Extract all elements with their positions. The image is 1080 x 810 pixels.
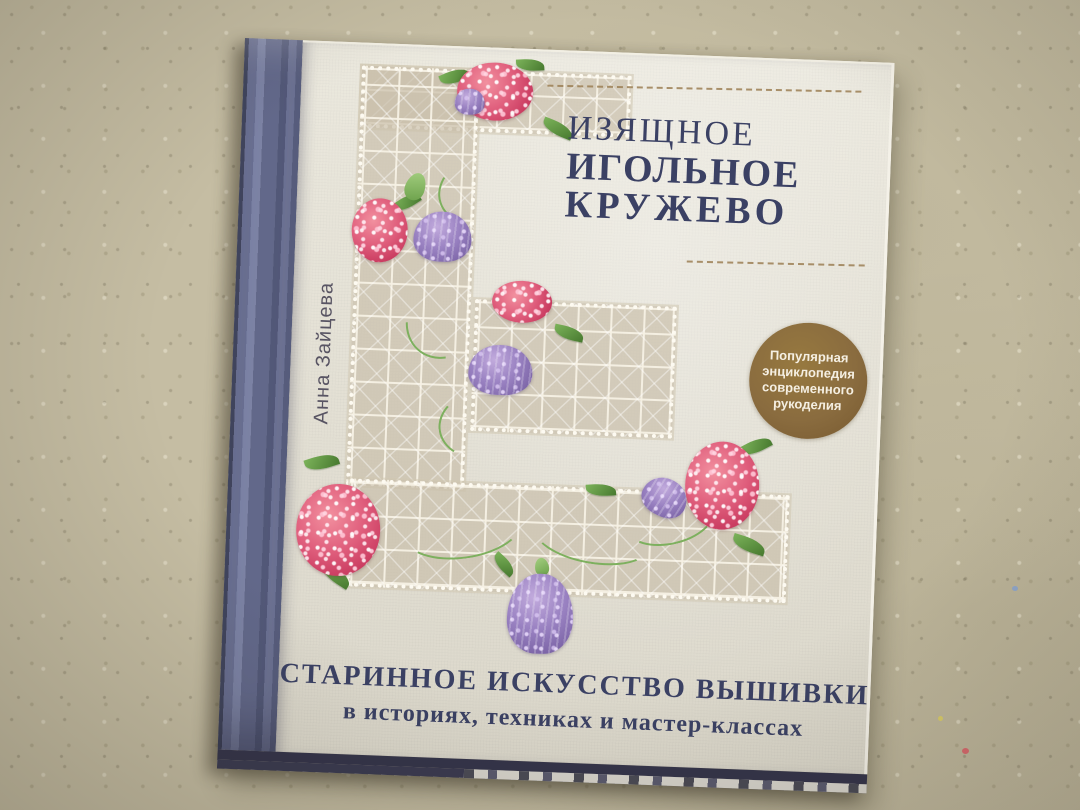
book-front-cover: Анна Зайцева ИЗЯЩНОЕ ИГОЛЬНОЕ КРУЖЕВО По… xyxy=(276,40,895,774)
photo-scene: Анна Зайцева ИЗЯЩНОЕ ИГОЛЬНОЕ КРУЖЕВО По… xyxy=(0,0,1080,810)
paint-speck xyxy=(938,716,943,721)
author-name: Анна Зайцева xyxy=(310,263,351,444)
gold-divider-middle xyxy=(687,261,865,267)
title-line-3: КРУЖЕВО xyxy=(564,185,800,232)
book: Анна Зайцева ИЗЯЩНОЕ ИГОЛЬНОЕ КРУЖЕВО По… xyxy=(217,38,895,793)
badge-line-4: рукоделия xyxy=(773,396,842,415)
subtitle: СТАРИННОЕ ИСКУССТВО ВЫШИВКИ в историях, … xyxy=(277,658,871,746)
purple-flower xyxy=(454,88,485,115)
publisher-badge: Популярная энциклопедия современного рук… xyxy=(747,321,869,441)
paint-speck xyxy=(962,748,969,754)
paint-speck xyxy=(1012,586,1018,591)
book-title: ИЗЯЩНОЕ ИГОЛЬНОЕ КРУЖЕВО xyxy=(564,109,803,232)
leaf xyxy=(303,450,340,474)
